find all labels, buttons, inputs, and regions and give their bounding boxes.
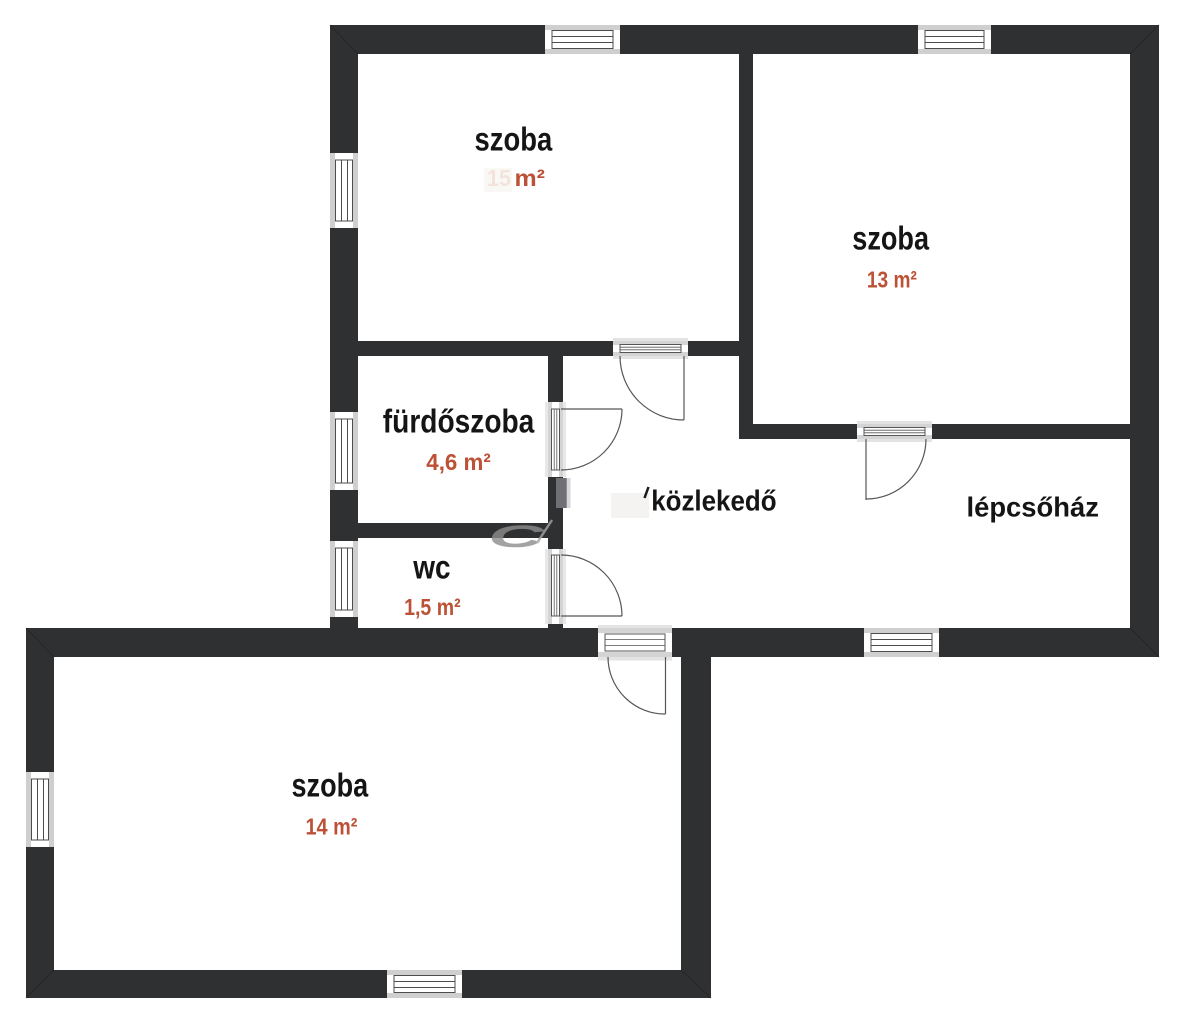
svg-text:közlekedő: közlekedő <box>651 485 776 517</box>
svg-text:fürdőszoba: fürdőszoba <box>383 403 535 440</box>
svg-text:13 m²: 13 m² <box>867 266 917 292</box>
svg-text:15: 15 <box>487 165 511 191</box>
svg-text:szoba: szoba <box>292 767 369 804</box>
svg-text:lépcsőház: lépcsőház <box>967 492 1099 523</box>
svg-text:1,5 m²: 1,5 m² <box>404 594 461 620</box>
svg-text:wc: wc <box>412 549 450 586</box>
svg-text:m²: m² <box>515 165 546 191</box>
svg-text:14 m²: 14 m² <box>306 814 358 840</box>
svg-text:szoba: szoba <box>475 121 553 158</box>
svg-text:szoba: szoba <box>852 219 929 256</box>
svg-text:C: C <box>488 518 546 554</box>
svg-text:4,6 m²: 4,6 m² <box>426 449 491 475</box>
